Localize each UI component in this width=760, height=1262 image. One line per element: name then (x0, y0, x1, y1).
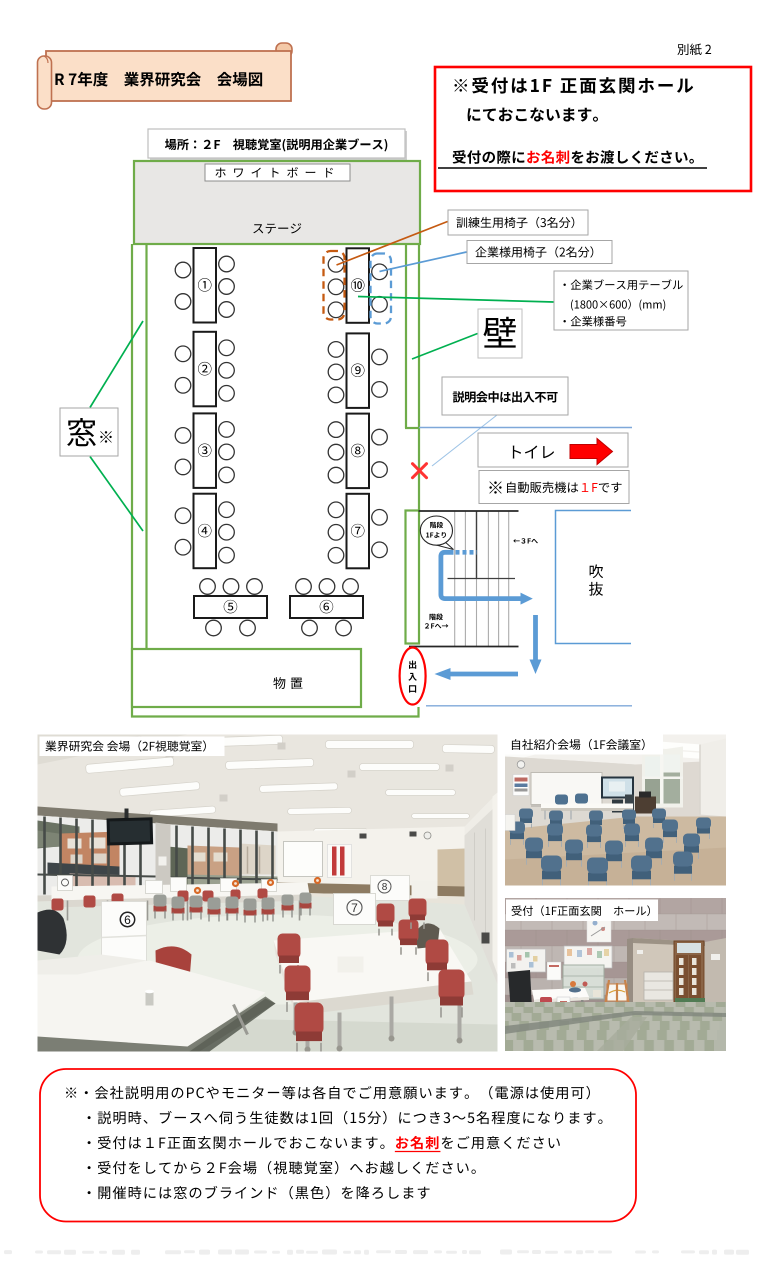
svg-text:8: 8 (382, 882, 388, 893)
svg-text:6: 6 (124, 913, 131, 927)
svg-text:7: 7 (351, 901, 358, 915)
